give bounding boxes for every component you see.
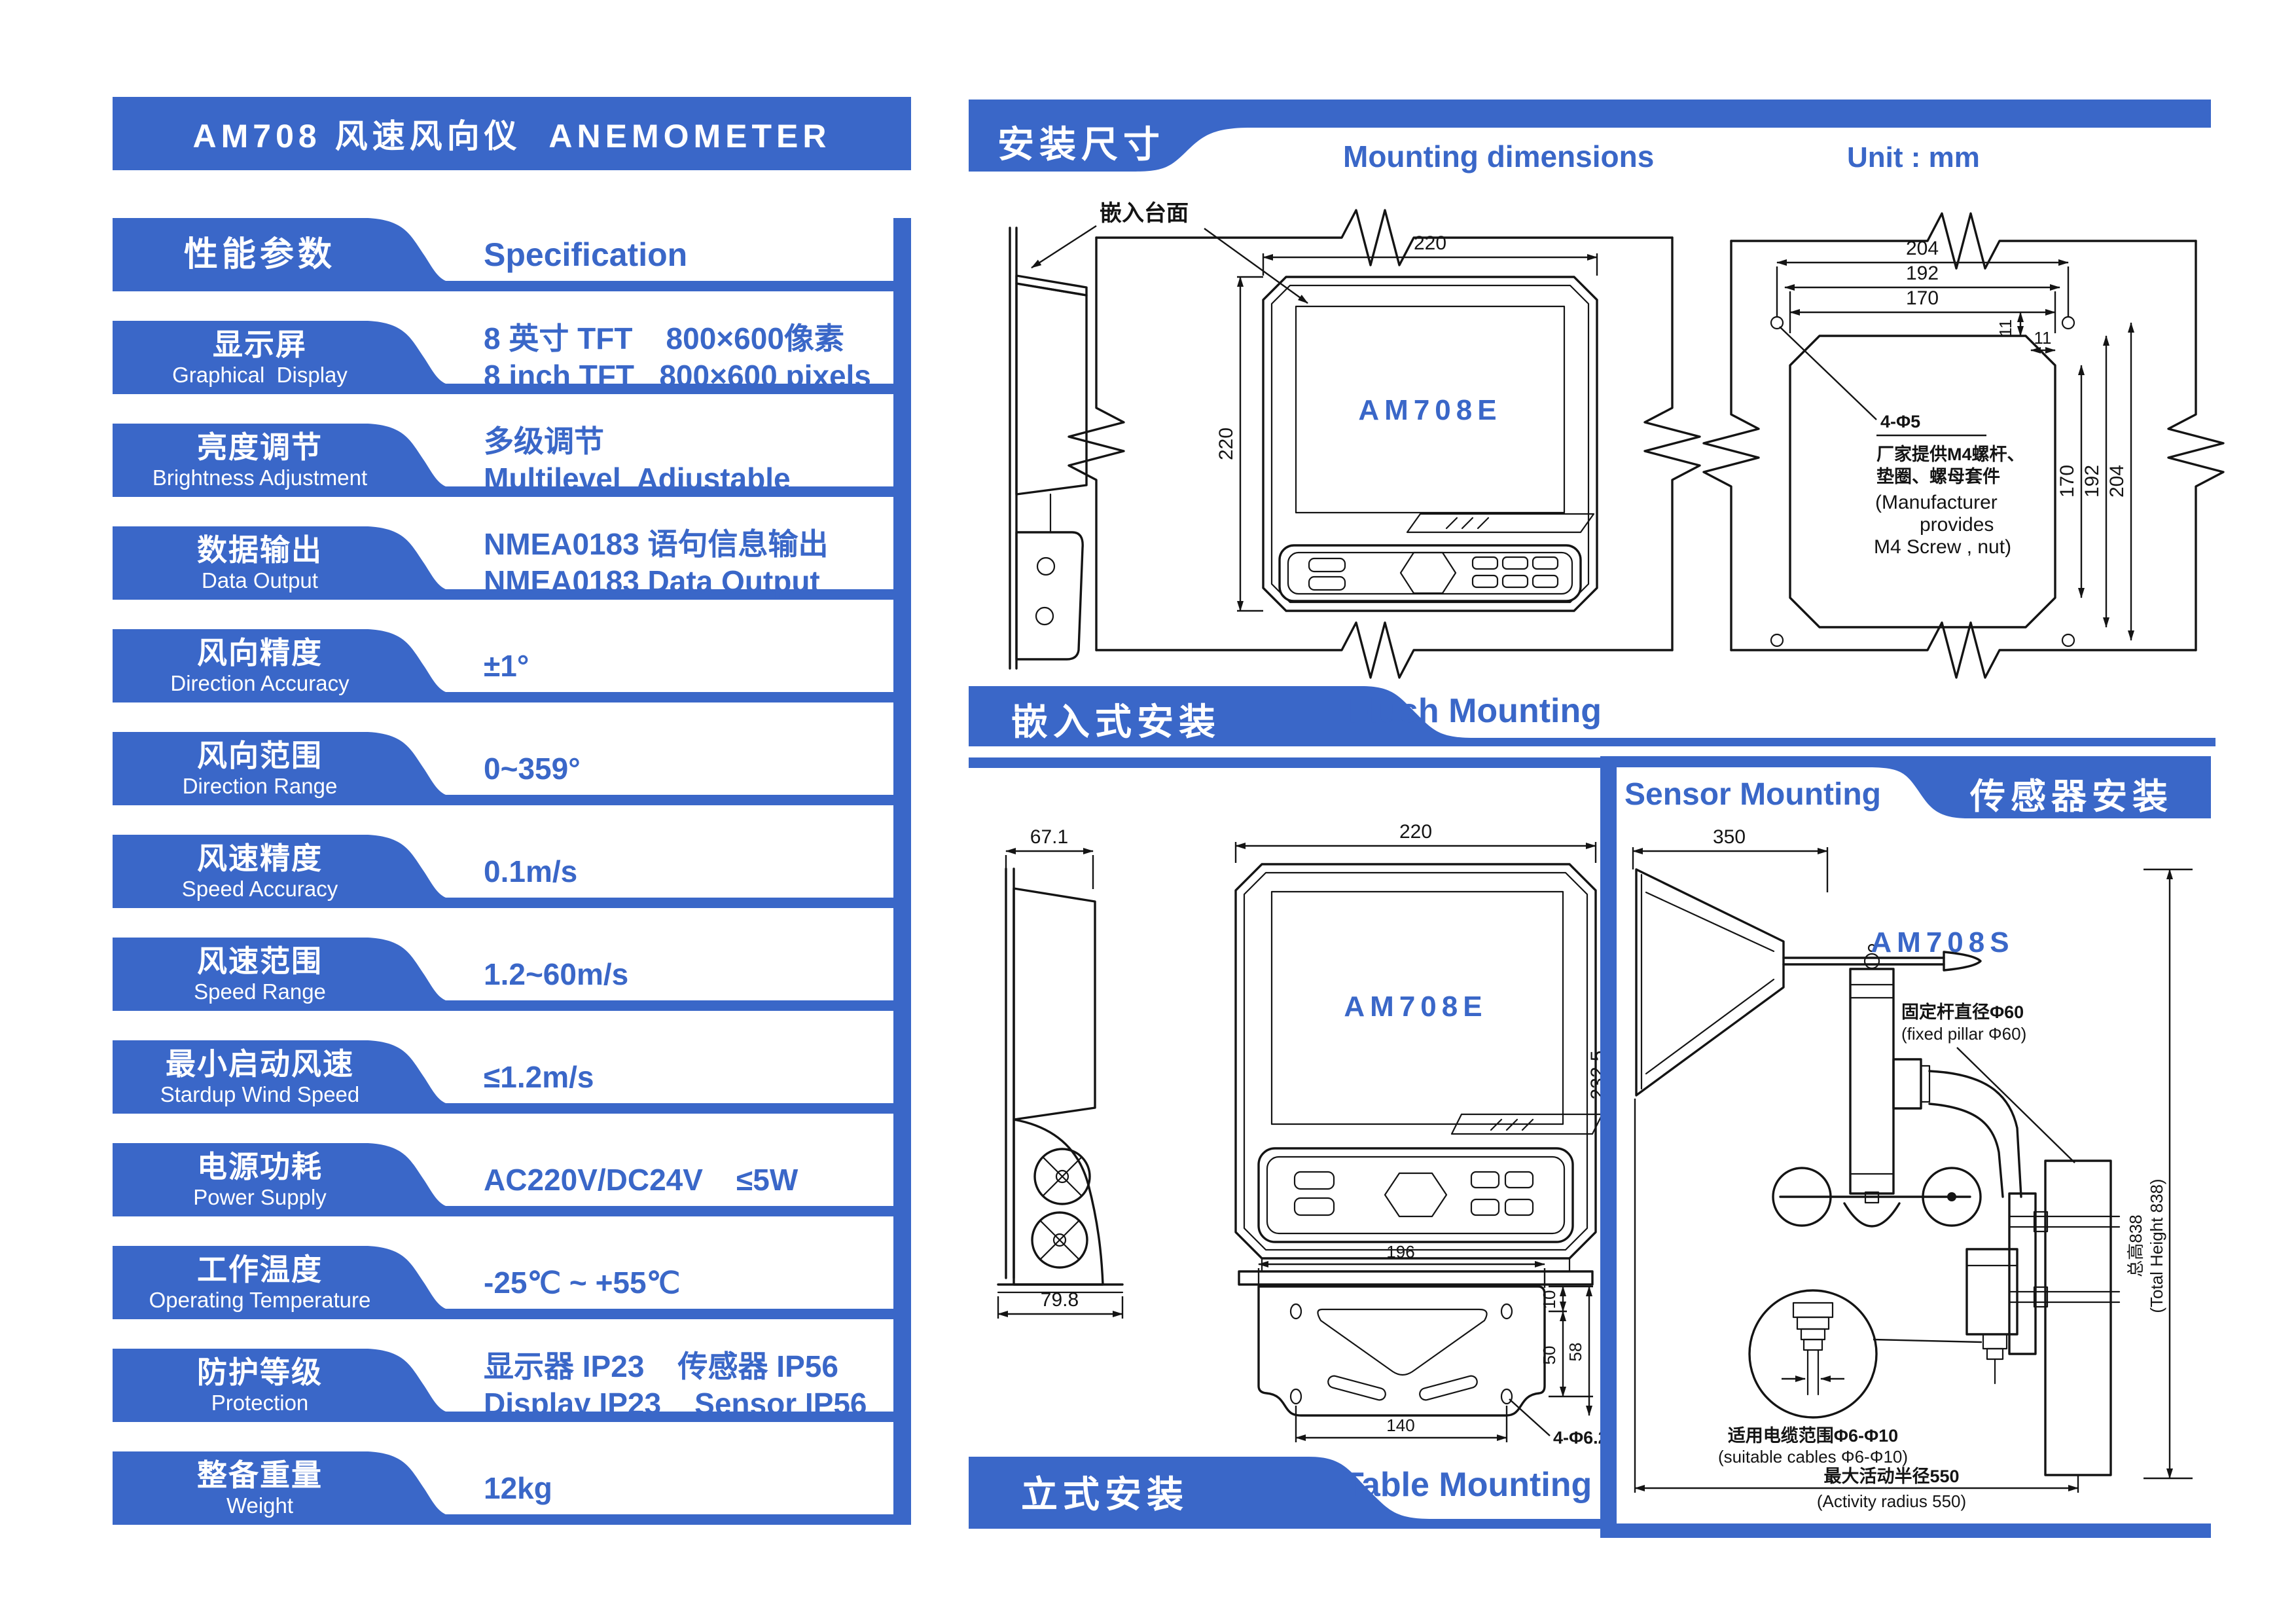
bracket-dims-top: 196 [1259,1242,1545,1288]
spec-value-line1: 多级调节 [484,423,909,460]
table-side-dims-bottom: 79.8 [998,1289,1122,1319]
dim-192-top: 192 [1906,263,1939,284]
table-front-device: AM708E [1236,864,1602,1285]
flush-section-en: Flush Mounting [1348,691,1602,731]
title-bar: AM708 风速风向仪 ANEMOMETER [113,97,911,170]
bracket-dims-bottom: 140 4-Φ6.2 [1296,1399,1608,1448]
spec-label-en: Direction Range [183,773,338,799]
dim-350: 350 [1713,826,1746,848]
bracket-dims-right: 10 50 58 [1539,1286,1593,1415]
flush-front-device: AM708E [1263,277,1597,611]
spec-value-line1: ≤1.2m/s [484,1059,909,1096]
spec-table-row: 风速精度 Speed Accuracy 0.1m/s [113,835,911,938]
page-title: AM708 风速风向仪 ANEMOMETER [193,110,831,157]
note-en1: (Manufacturer [1875,492,1998,513]
spec-row-value: 8 英寸 TFT 800×600像素 8 inch TFT 800×600 pi… [484,321,909,394]
pillar-note-zh: 固定杆直径Φ60 [1901,1002,2024,1022]
spec-label-en: Weight [226,1493,293,1519]
panel-note-text: 嵌入台面 [1100,201,1189,226]
spec-label-en: Data Output [202,568,318,594]
spec-table-row: 风速范围 Speed Range 1.2~60m/s [113,938,911,1040]
dim-58: 58 [1566,1343,1585,1362]
flush-model-text: AM708E [1358,394,1501,426]
bracket-drawing: 196 10 50 58 140 [1223,1247,1648,1450]
sensor-section-en: Sensor Mounting [1624,776,1881,812]
spec-row-label: 风速精度 Speed Accuracy [113,835,407,908]
cutout-top-dims: 204 192 170 [1777,238,2068,333]
spec-row-label: 风向精度 Direction Accuracy [113,629,407,702]
mounting-header-zh: 安装尺寸 [997,115,1165,168]
spec-row-label: 亮度调节 Brightness Adjustment [113,424,407,497]
spec-row-label: 风向范围 Direction Range [113,732,407,805]
spec-table-row: 亮度调节 Brightness Adjustment 多级调节 Multilev… [113,424,911,526]
sensor-drawing: 350 [1617,830,2211,1524]
note-zh1: 厂家提供M4螺杆、 [1876,444,2025,464]
flush-panel-breaklines [1069,210,1700,678]
spec-value-line2: 8 inch TFT 800×600 pixels [484,357,909,395]
sensor-labels: AM708S 固定杆直径Φ60 (fixed pillar Φ60) 总高838… [1635,869,2193,1511]
spec-header-label: 性能参数 [113,218,407,291]
dim-170-right: 170 [2056,465,2078,498]
spec-label-zh: 风向范围 [197,738,323,773]
spec-label-en: Operating Temperature [149,1287,371,1313]
dim-140: 140 [1386,1415,1414,1435]
mounting-unit-label: Unit : mm [1847,141,1980,174]
spec-label-zh: 最小启动风速 [166,1046,354,1082]
spec-label-en: Brightness Adjustment [152,465,367,491]
flush-panel-note: 嵌入台面 [1031,201,1308,303]
flush-side-view [1010,228,1086,668]
spec-row-value: NMEA0183 语句信息输出 NMEA0183 Data Output [484,526,909,600]
spec-value-line1: 显示器 IP23 传感器 IP56 [484,1348,909,1385]
radius-note-en: (Activity radius 550) [1817,1491,1966,1511]
mounting-header-en: Mounting dimensions [1343,139,1654,174]
hole-label-4phi5: 4-Φ5 [1880,412,1920,431]
spec-row-value: 显示器 IP23 传感器 IP56 Display IP23 Sensor IP… [484,1349,909,1422]
table-section-en: Table Mounting [1343,1465,1592,1504]
spec-label-zh: 电源功耗 [197,1149,323,1184]
radius-note-zh: 最大活动半径550 [1823,1467,1959,1486]
spec-table-row: 工作温度 Operating Temperature -25℃ ~ +55℃ [113,1246,911,1349]
sensor-model-text: AM708S [1871,926,2014,958]
spec-header-value: Specification [484,218,909,291]
spec-value-line1: 0.1m/s [484,853,909,890]
spec-row-value: 12kg [484,1451,909,1525]
flush-section-zh: 嵌入式安装 [1011,693,1221,746]
spec-table-row: 风向范围 Direction Range 0~359° [113,732,911,835]
dim-67-1: 67.1 [1030,826,1068,848]
spec-row-label: 数据输出 Data Output [113,526,407,600]
spec-row-value: ±1° [484,629,909,702]
note-en2: provides [1920,514,1994,536]
spec-table-row: 最小启动风速 Stardup Wind Speed ≤1.2m/s [113,1040,911,1143]
spec-table-row: 整备重量 Weight 12kg [113,1451,911,1554]
cutout-right-dims: 170 192 204 11 11 [1996,312,2131,640]
spec-row-label: 风速范围 Speed Range [113,938,407,1011]
table-side-drawing: 67.1 79.8 [985,826,1194,1330]
spec-header-value-text: Specification [484,236,909,274]
dim-50: 50 [1539,1346,1559,1365]
spec-label-en: Power Supply [193,1184,327,1211]
separator-strip [969,757,1600,768]
spec-label-zh: 防护等级 [197,1355,323,1390]
spec-row-value: 1.2~60m/s [484,938,909,1011]
spec-label-en: Speed Range [194,979,326,1005]
cable-detail-circle [1749,1290,1982,1417]
spec-label-en: Graphical Display [172,362,348,388]
spec-label-zh: 风速范围 [197,943,323,979]
spec-label-zh: 数据输出 [197,532,323,568]
sensor-panel-left-border [1600,756,1617,1538]
spec-label-zh: 亮度调节 [197,429,323,465]
spec-table-rail [893,218,911,1525]
spec-value-line1: NMEA0183 语句信息输出 [484,526,909,563]
dim-10: 10 [1539,1290,1559,1309]
dim-204-top: 204 [1906,238,1939,259]
cable-note-zh: 适用电缆范围Φ6-Φ10 [1728,1426,1898,1446]
spec-label-zh: 显示屏 [213,327,307,362]
spec-table-row: 显示屏 Graphical Display 8 英寸 TFT 800×600像素… [113,321,911,424]
spec-row-value: -25℃ ~ +55℃ [484,1246,909,1319]
dim-79-8: 79.8 [1041,1289,1079,1311]
table-front-dims: 220 232.5 [1236,821,1612,1285]
spec-label-en: Speed Accuracy [182,876,338,902]
spec-table-row: 风向精度 Direction Accuracy ±1° [113,629,911,732]
spec-value-line2: Multilevel Adjustable [484,460,909,498]
spec-label-zh: 工作温度 [197,1252,323,1287]
spec-value-line1: 12kg [484,1470,909,1507]
cutout-drawing: 204 192 170 170 192 204 11 11 4-Φ5 [1712,192,2219,689]
spec-row-label: 整备重量 Weight [113,1451,407,1525]
cable-note-en: (suitable cables Φ6-Φ10) [1718,1447,1908,1467]
spec-row-value: 0~359° [484,732,909,805]
table-model-text: AM708E [1344,991,1487,1023]
table-side-dims-top: 67.1 [1006,826,1093,889]
spec-row-label: 显示屏 Graphical Display [113,321,407,394]
wind-vane [1636,869,1981,1095]
dim-width: 220 [1414,232,1446,254]
spec-header-zh: 性能参数 [184,237,336,272]
spec-value-line1: ±1° [484,647,909,685]
height-note-en: (Total Height 838) [2147,1178,2166,1313]
note-zh2: 垫圈、螺母套件 [1876,467,2000,486]
datasheet-page: AM708 风速风向仪 ANEMOMETER 性能参数 Specificatio… [0,0,2296,1623]
spec-label-zh: 整备重量 [197,1457,323,1493]
table-section-zh: 立式安装 [1021,1465,1189,1518]
dim-height: 220 [1215,428,1237,460]
spec-value-line1: AC220V/DC24V ≤5W [484,1161,909,1199]
spec-row-value: 多级调节 Multilevel Adjustable [484,424,909,497]
spec-table-row: 防护等级 Protection 显示器 IP23 传感器 IP56 Displa… [113,1349,911,1451]
spec-label-en: Protection [211,1390,309,1416]
dim-11-v: 11 [1996,319,2015,337]
sensor-panel-bottom-border [1617,1523,2211,1538]
spec-row-value: AC220V/DC24V ≤5W [484,1143,909,1216]
dim-220-table: 220 [1399,821,1432,843]
spec-value-line2: NMEA0183 Data Output [484,563,909,600]
spec-value-line2: Display IP23 Sensor IP56 [484,1385,909,1423]
flush-mount-drawing: 嵌入台面 AM708E [988,192,1682,689]
dim-170-top: 170 [1906,287,1939,309]
dim-192-right: 192 [2081,465,2103,498]
table-side-body [998,869,1122,1292]
note-en3: M4 Screw , nut) [1874,536,2011,558]
spec-value-line1: 0~359° [484,750,909,788]
spec-label-zh: 风向精度 [197,635,323,670]
mounting-arm-and-pole [1929,1071,2119,1475]
spec-row-value: 0.1m/s [484,835,909,908]
dim-196: 196 [1386,1242,1414,1262]
spec-value-line1: 1.2~60m/s [484,956,909,993]
spec-value-line1: 8 英寸 TFT 800×600像素 [484,320,909,357]
spec-label-en: Stardup Wind Speed [160,1082,360,1108]
spec-table-row: 数据输出 Data Output NMEA0183 语句信息输出 NMEA018… [113,526,911,629]
spec-row-label: 电源功耗 Power Supply [113,1143,407,1216]
spec-row-label: 防护等级 Protection [113,1349,407,1422]
spec-label-en: Direction Accuracy [170,670,349,697]
spec-row-value: ≤1.2m/s [484,1040,909,1114]
dim-11-h: 11 [2034,328,2052,348]
cutout-notes: 4-Φ5 厂家提供M4螺杆、 垫圈、螺母套件 (Manufacturer pro… [1780,327,2025,558]
spec-value-line1: -25℃ ~ +55℃ [484,1264,909,1302]
spec-header-row: 性能参数 Specification [113,218,911,321]
height-note-zh: 总高838 [2126,1214,2145,1277]
sensor-section-zh: 传感器安装 [1970,767,2173,819]
spec-row-label: 最小启动风速 Stardup Wind Speed [113,1040,407,1114]
spec-row-label: 工作温度 Operating Temperature [113,1246,407,1319]
spec-table-row: 电源功耗 Power Supply AC220V/DC24V ≤5W [113,1143,911,1246]
pillar-note-en: (fixed pillar Φ60) [1901,1024,2026,1044]
bracket-plate [1259,1286,1545,1415]
dim-204-right: 204 [2106,465,2128,498]
spec-label-zh: 风速精度 [197,841,323,876]
